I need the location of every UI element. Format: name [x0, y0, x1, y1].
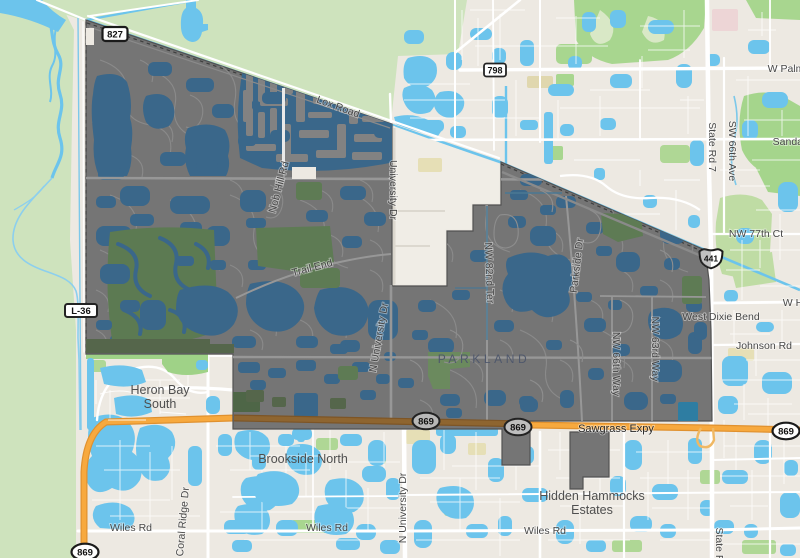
svg-text:NW 77th Ct: NW 77th Ct: [729, 228, 783, 240]
svg-text:869: 869: [418, 417, 434, 428]
svg-text:441: 441: [704, 254, 718, 264]
svg-text:869: 869: [510, 423, 526, 434]
svg-text:NW 63rd Way: NW 63rd Way: [649, 317, 661, 383]
svg-text:University Dr: University Dr: [387, 160, 399, 221]
svg-text:West Dixie Bend: West Dixie Bend: [682, 311, 760, 323]
svg-text:Estates: Estates: [571, 503, 613, 517]
svg-text:South: South: [144, 397, 177, 411]
svg-text:827: 827: [107, 30, 123, 41]
svg-text:Heron Bay: Heron Bay: [130, 383, 190, 397]
svg-text:NW 82nd Ter: NW 82nd Ter: [482, 242, 496, 304]
svg-text:869: 869: [778, 427, 794, 438]
svg-text:Sawgrass Expy: Sawgrass Expy: [578, 423, 654, 435]
svg-text:W Palm: W Palm: [768, 63, 800, 75]
svg-text:W H: W H: [783, 297, 800, 309]
svg-text:Hidden Hammocks: Hidden Hammocks: [539, 489, 645, 503]
svg-text:State Rd 7: State Rd 7: [706, 122, 718, 172]
svg-text:PARKLAND: PARKLAND: [438, 352, 531, 366]
svg-text:N University Dr: N University Dr: [397, 472, 409, 543]
svg-text:Brookside North: Brookside North: [258, 452, 348, 466]
svg-text:NW 66th Way: NW 66th Way: [610, 332, 622, 397]
svg-text:869: 869: [77, 548, 93, 558]
svg-text:Wiles Rd: Wiles Rd: [524, 525, 566, 537]
svg-text:Wiles Rd: Wiles Rd: [306, 522, 348, 534]
svg-text:L-36: L-36: [71, 306, 91, 317]
svg-text:SW 66th Ave: SW 66th Ave: [726, 121, 738, 182]
svg-text:Johnson Rd: Johnson Rd: [736, 340, 792, 352]
svg-text:State R: State R: [713, 527, 725, 558]
svg-text:Sandal: Sandal: [773, 136, 800, 148]
svg-text:798: 798: [487, 66, 502, 76]
svg-text:Wiles Rd: Wiles Rd: [110, 522, 152, 534]
